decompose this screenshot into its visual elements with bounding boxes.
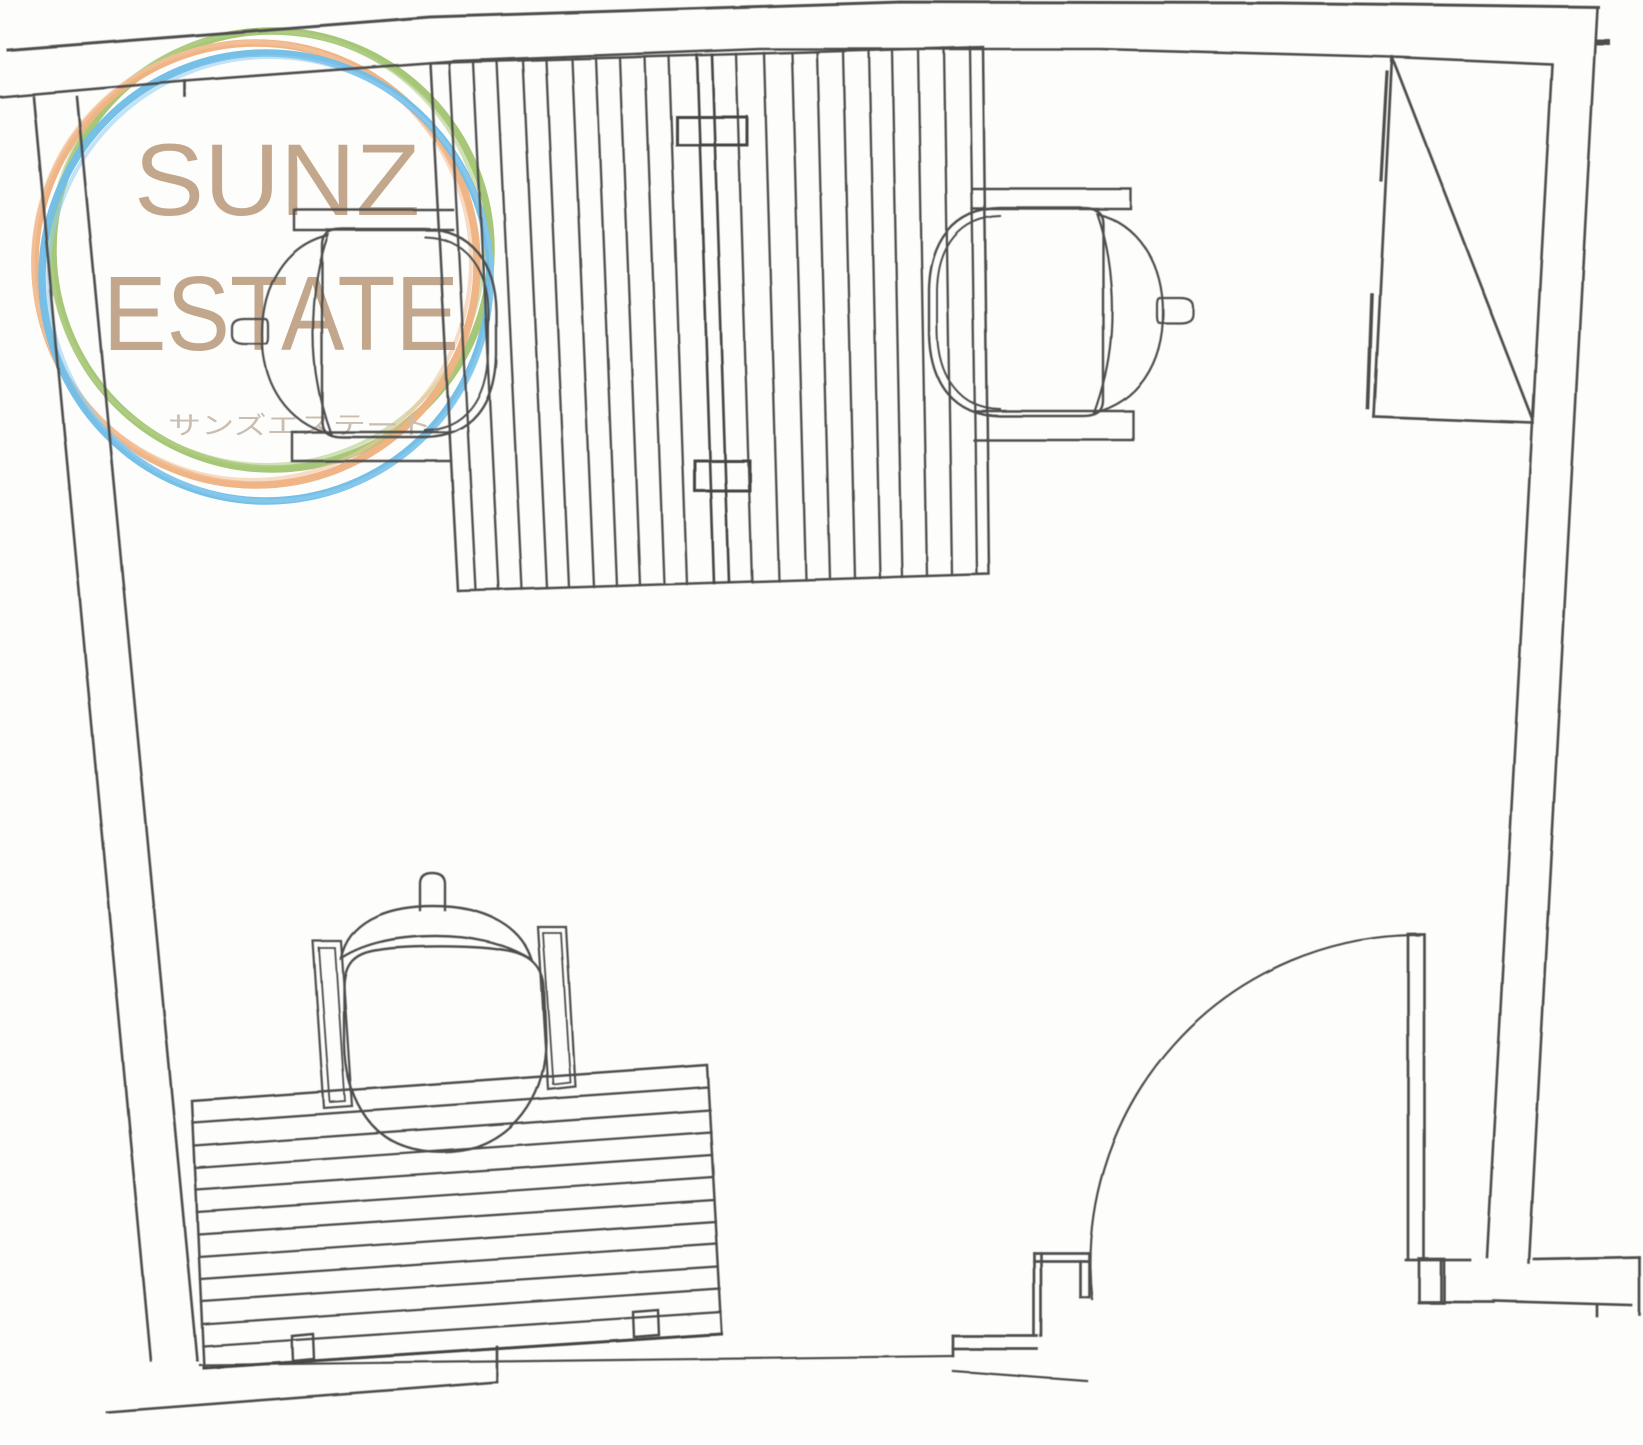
svg-text:ESTATE: ESTATE xyxy=(103,255,459,373)
svg-text:サンズエステート: サンズエステート xyxy=(168,412,432,440)
svg-text:SUNZ: SUNZ xyxy=(134,123,420,237)
